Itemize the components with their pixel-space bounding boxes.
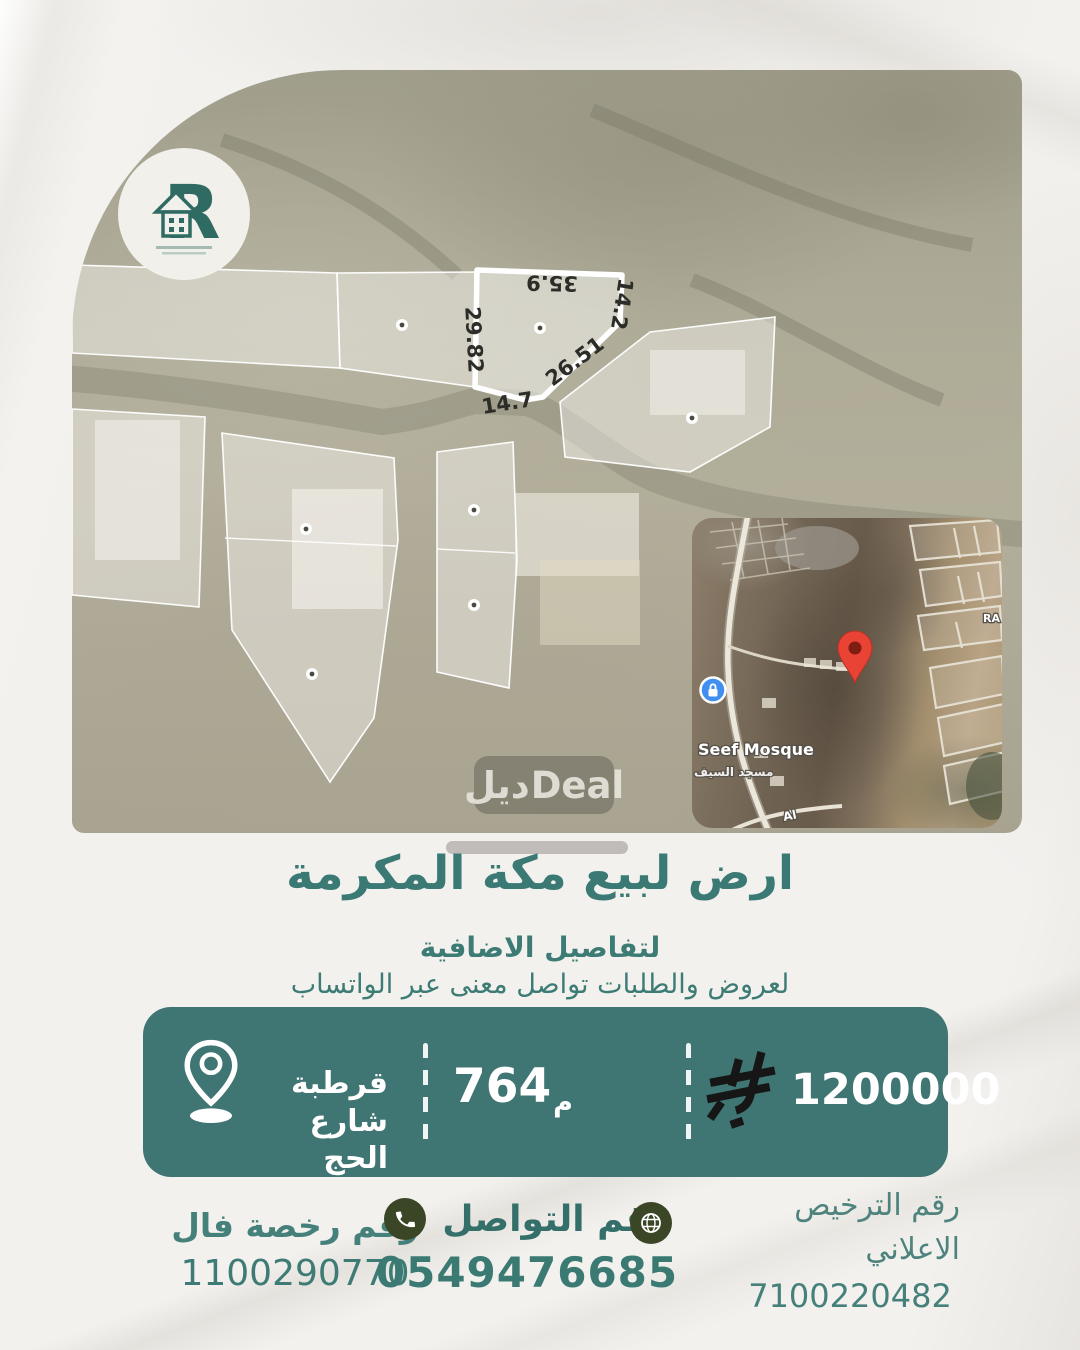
poi-blue-icon — [701, 678, 726, 703]
ad-license-label-2: الاعلاني — [740, 1228, 960, 1272]
dim-left: 29.82 — [460, 306, 487, 374]
details-banner: قرطبة شارع الحج 764 م 1200000 — [143, 1007, 948, 1177]
street-label-side: RA — [983, 612, 1000, 625]
listing-subtitle-1: لتفاصيل الاضافية — [0, 931, 1080, 964]
inset-map-art: Seef Mosque مسجد السيف RA Al — [692, 518, 1002, 828]
highway — [728, 518, 768, 828]
logo-tagline-bar — [156, 246, 212, 249]
plot-lower-column — [437, 442, 517, 688]
price-value: 1200000 — [791, 1065, 946, 1115]
area-value-group: 764 م — [438, 1061, 588, 1118]
poi-label-en: Seef Mosque — [698, 740, 814, 759]
location-text: قرطبة شارع الحج — [243, 1065, 388, 1178]
listing-title: ارض لبيع مكة المكرمة — [0, 846, 1080, 901]
saudi-riyal-icon — [705, 1049, 779, 1131]
location-line1: قرطبة شارع — [243, 1065, 388, 1140]
plot-outlines — [72, 265, 775, 782]
dim-top: 35.9 — [526, 271, 578, 296]
quarry-patch — [775, 526, 859, 570]
contact-number: 0549476685 — [372, 1248, 682, 1297]
agency-logo: R — [118, 148, 250, 280]
street-label-bottom: Al — [782, 807, 798, 823]
agency-logo-art: R — [118, 148, 250, 280]
ad-license-block: رقم الترخيص الاعلاني 7100220482 — [740, 1184, 960, 1315]
poi-label-ar: مسجد السيف — [694, 765, 773, 779]
globe-icon — [630, 1202, 672, 1244]
plot-lower-left — [72, 409, 205, 607]
ad-license-label-1: رقم الترخيص — [740, 1184, 960, 1228]
watermark-arabic: ديل — [464, 764, 530, 807]
phone-icon — [384, 1198, 426, 1240]
ad-poster: 35.9 14.2 29.82 26.51 14.7 R — [0, 0, 1080, 1350]
inset-locator-map: Seef Mosque مسجد السيف RA Al — [692, 518, 1002, 828]
location-line2: الحج — [243, 1140, 388, 1178]
area-unit: م — [553, 1087, 573, 1118]
deal-watermark: ديلDeal — [474, 756, 614, 814]
logo-url-bar — [162, 252, 206, 255]
plot-upper-left — [72, 265, 340, 368]
area-value: 764 — [453, 1061, 551, 1113]
banner-divider-1 — [423, 1043, 428, 1143]
banner-divider-2 — [686, 1043, 691, 1143]
watermark-latin: Deal — [531, 764, 624, 807]
location-pin-icon — [838, 631, 872, 683]
ad-license-number: 7100220482 — [740, 1277, 960, 1315]
plot-lower-big — [222, 433, 398, 782]
listing-subtitle-2: لعروض والطلبات تواصل معنى عبر الواتساب — [0, 969, 1080, 1000]
map-pin-icon — [179, 1033, 243, 1129]
plot-upper-mid — [337, 272, 475, 387]
